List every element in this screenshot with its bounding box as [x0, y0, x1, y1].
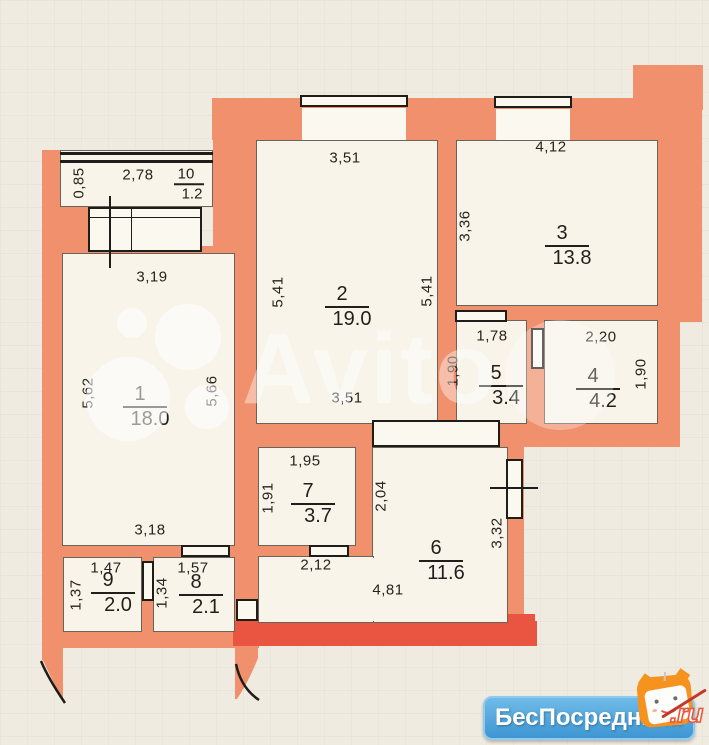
mascot-blush-icon [652, 709, 657, 713]
room-number: 1 [134, 384, 145, 405]
room-number: 3 [556, 223, 567, 244]
room-label-10: 101.2 [174, 166, 204, 202]
room-number: 5 [490, 363, 501, 384]
room-area: 2.1 [192, 597, 220, 618]
room-area: 1.2 [182, 186, 203, 202]
floor-plan-image: 0,852,783,195,625,663,515,415,413,514,12… [0, 0, 709, 745]
room-area: 19.0 [333, 309, 372, 330]
room-label-2: 219.0 [325, 284, 369, 330]
dimension-label: 2,04 [373, 480, 390, 511]
room-area: 18.0 [131, 409, 170, 430]
dimension-label: 3,36 [457, 210, 474, 241]
dimension-label: 1,78 [476, 328, 507, 345]
room-label-1: 118.0 [123, 384, 167, 430]
dimension-label: 1,91 [260, 482, 277, 513]
room-number: 4 [587, 366, 598, 387]
dimension-label: 1,90 [633, 358, 650, 389]
room-label-9: 92.0 [91, 570, 135, 616]
dimension-label: 1,90 [445, 355, 462, 386]
dimension-label: 2,20 [585, 329, 616, 346]
mascot-ear-icon [638, 673, 655, 690]
dimension-label: 5,66 [204, 375, 221, 406]
room-label-3: 313.8 [545, 223, 589, 269]
dimension-label: 3,51 [331, 390, 362, 407]
room-number: 8 [190, 572, 201, 593]
room-area: 11.6 [427, 563, 464, 584]
room-number: 10 [178, 166, 195, 182]
dimension-label: 3,51 [329, 150, 360, 167]
dimension-label: 3,32 [489, 517, 506, 548]
room-label-4: 44.2 [576, 366, 620, 412]
dimension-label: 1,34 [154, 577, 171, 608]
dimension-label: 5,62 [80, 377, 97, 408]
room-area: 3.4 [492, 388, 520, 409]
dimension-label: 2,78 [122, 167, 153, 184]
room-area: 13.8 [553, 248, 592, 269]
room-area: 2.0 [104, 595, 132, 616]
room-number: 2 [336, 284, 347, 305]
room-number: 7 [302, 481, 313, 502]
dimension-label: 4,12 [535, 139, 566, 156]
dimension-label: 3,19 [136, 269, 167, 286]
dimension-label: 5,41 [419, 275, 436, 306]
room-number: 9 [102, 570, 113, 591]
dimension-label: 5,41 [270, 276, 287, 307]
dimension-label: 1,95 [289, 453, 320, 470]
room-number: 6 [430, 538, 441, 559]
room-label-5: 53.4 [479, 363, 523, 409]
room-label-8: 82.1 [179, 572, 223, 618]
dimension-label: 2,12 [300, 557, 331, 574]
plan-labels: 0,852,783,195,625,663,515,415,413,514,12… [0, 0, 709, 745]
mascot-antenna-icon [664, 672, 666, 681]
dimension-label: 0,85 [71, 167, 88, 198]
dimension-label: 4,81 [372, 582, 403, 599]
room-area: 3.7 [304, 506, 332, 527]
dimension-label: 3,18 [134, 522, 165, 539]
logo-domain-suffix: .ru [670, 698, 703, 729]
room-area: 4.2 [589, 391, 617, 412]
room-label-7: 73.7 [291, 481, 335, 527]
room-label-6: 611.6 [419, 538, 463, 584]
dimension-label: 1,37 [68, 579, 85, 610]
besposrednika-logo: БесПосредника .ru [478, 672, 709, 745]
